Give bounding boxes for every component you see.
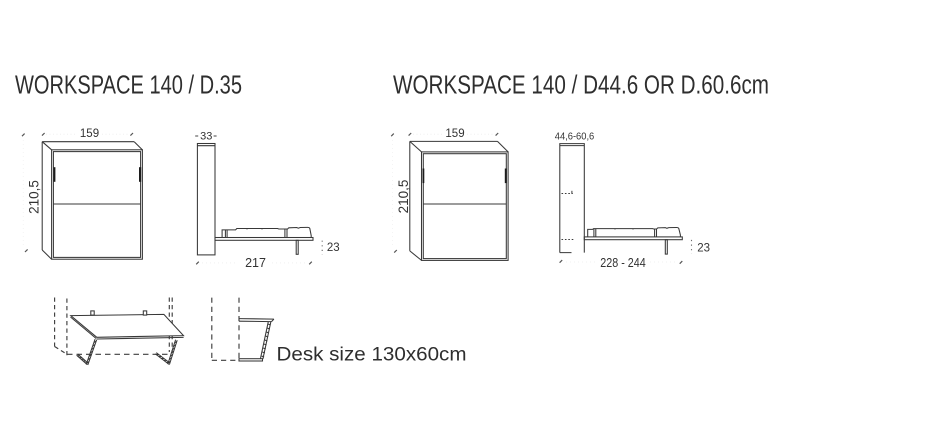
svg-text:210,5: 210,5 [396,180,411,214]
svg-text:210,5: 210,5 [26,180,41,214]
svg-text:23: 23 [697,243,710,255]
svg-text:159: 159 [445,128,464,140]
svg-text:WORKSPACE 140 / D44.6 OR D.60.: WORKSPACE 140 / D44.6 OR D.60.6cm [393,72,769,100]
svg-text:33: 33 [200,131,212,143]
svg-text:159: 159 [80,128,99,140]
svg-text:44,6-60,6: 44,6-60,6 [555,132,595,143]
svg-text:23: 23 [327,242,340,254]
svg-text:WORKSPACE 140 / D.35: WORKSPACE 140 / D.35 [15,72,242,100]
svg-text:217: 217 [245,256,266,270]
svg-text:228 - 244: 228 - 244 [600,256,646,270]
svg-text:Desk size 130x60cm: Desk size 130x60cm [277,345,467,366]
